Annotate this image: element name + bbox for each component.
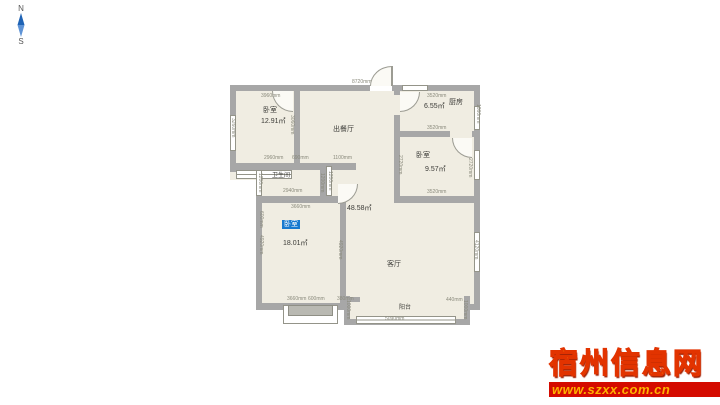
window <box>402 85 428 91</box>
dim-label: 1200mm <box>257 173 263 192</box>
wall <box>256 196 346 203</box>
dim-label: 2960mm <box>264 155 283 161</box>
dim-label: 3520mm <box>427 93 446 99</box>
dim-label: 690mm <box>292 155 309 161</box>
dim-label: 3660mm <box>291 204 310 210</box>
dim-label: 600mm <box>308 296 325 302</box>
room-label-bedroom3-selected[interactable]: 卧室 <box>282 220 300 229</box>
room-label-bedroom1: 卧室 <box>263 107 277 115</box>
room-area-bedroom2: 9.57㎡ <box>425 166 446 174</box>
room-label-balcony: 阳台 <box>399 304 411 312</box>
door-leaf <box>391 66 393 86</box>
open-area-label: 48.58㎡ <box>347 205 372 213</box>
window <box>474 150 480 180</box>
floor-area <box>256 163 480 310</box>
dim-label: 4920mm <box>258 235 264 254</box>
room-area-bedroom1: 12.91㎡ <box>261 118 286 126</box>
dim-label: 3260mm <box>230 118 236 137</box>
watermark: 宿州信息网 www.szxx.com.cn <box>549 344 720 397</box>
dim-label: 1200mm <box>319 173 325 192</box>
compass-north-label: N <box>10 4 32 13</box>
compass-needle-icon <box>10 13 32 37</box>
dim-label: 2720mm <box>467 158 473 177</box>
window <box>356 316 456 324</box>
dim-label: 1000mm <box>345 300 351 319</box>
dim-label: 2720mm <box>397 155 403 174</box>
dim-label: 1200mm <box>327 171 333 190</box>
dim-label: 4120mm <box>473 240 479 259</box>
dim-label: 5090mm <box>385 316 404 322</box>
dim-label: 1000mm <box>462 300 468 319</box>
bay-window-sill <box>288 305 333 316</box>
room-label-kitchen: 厨房 <box>449 99 463 107</box>
door-arc-entrance <box>370 66 392 86</box>
watermark-site-name: 宿州信息网 <box>549 344 720 382</box>
watermark-url: www.szxx.com.cn <box>549 382 720 397</box>
wall <box>230 85 480 91</box>
room-label-living: 客厅 <box>387 261 401 269</box>
dim-label: 3520mm <box>427 189 446 195</box>
dim-label: 440mm <box>446 297 463 303</box>
room-label-bedroom2: 卧室 <box>416 152 430 160</box>
room-area-kitchen: 6.55㎡ <box>424 103 445 111</box>
dim-label: 1100mm <box>333 155 352 161</box>
dim-label: 3520mm <box>427 125 446 131</box>
wall <box>230 163 356 170</box>
dim-label: 600mm <box>258 211 264 228</box>
door-opening <box>450 131 472 137</box>
room-area-bedroom3: 18.01㎡ <box>283 240 308 248</box>
wall <box>394 196 480 203</box>
room-label-bathroom: 卫生间 <box>272 172 290 180</box>
compass: N S <box>10 4 32 46</box>
dim-label: 3660mm <box>287 296 306 302</box>
room-label-dining: 出餐厅 <box>333 126 354 134</box>
compass-south-label: S <box>10 37 32 46</box>
dim-label: 2940mm <box>283 188 302 194</box>
dim-label: 4920mm <box>337 240 343 259</box>
dim-label: 3960mm <box>261 93 280 99</box>
dim-label: 8720mm <box>352 79 371 85</box>
dim-label: 3060mm <box>289 115 295 134</box>
dim-label: 1860mm <box>475 104 481 123</box>
